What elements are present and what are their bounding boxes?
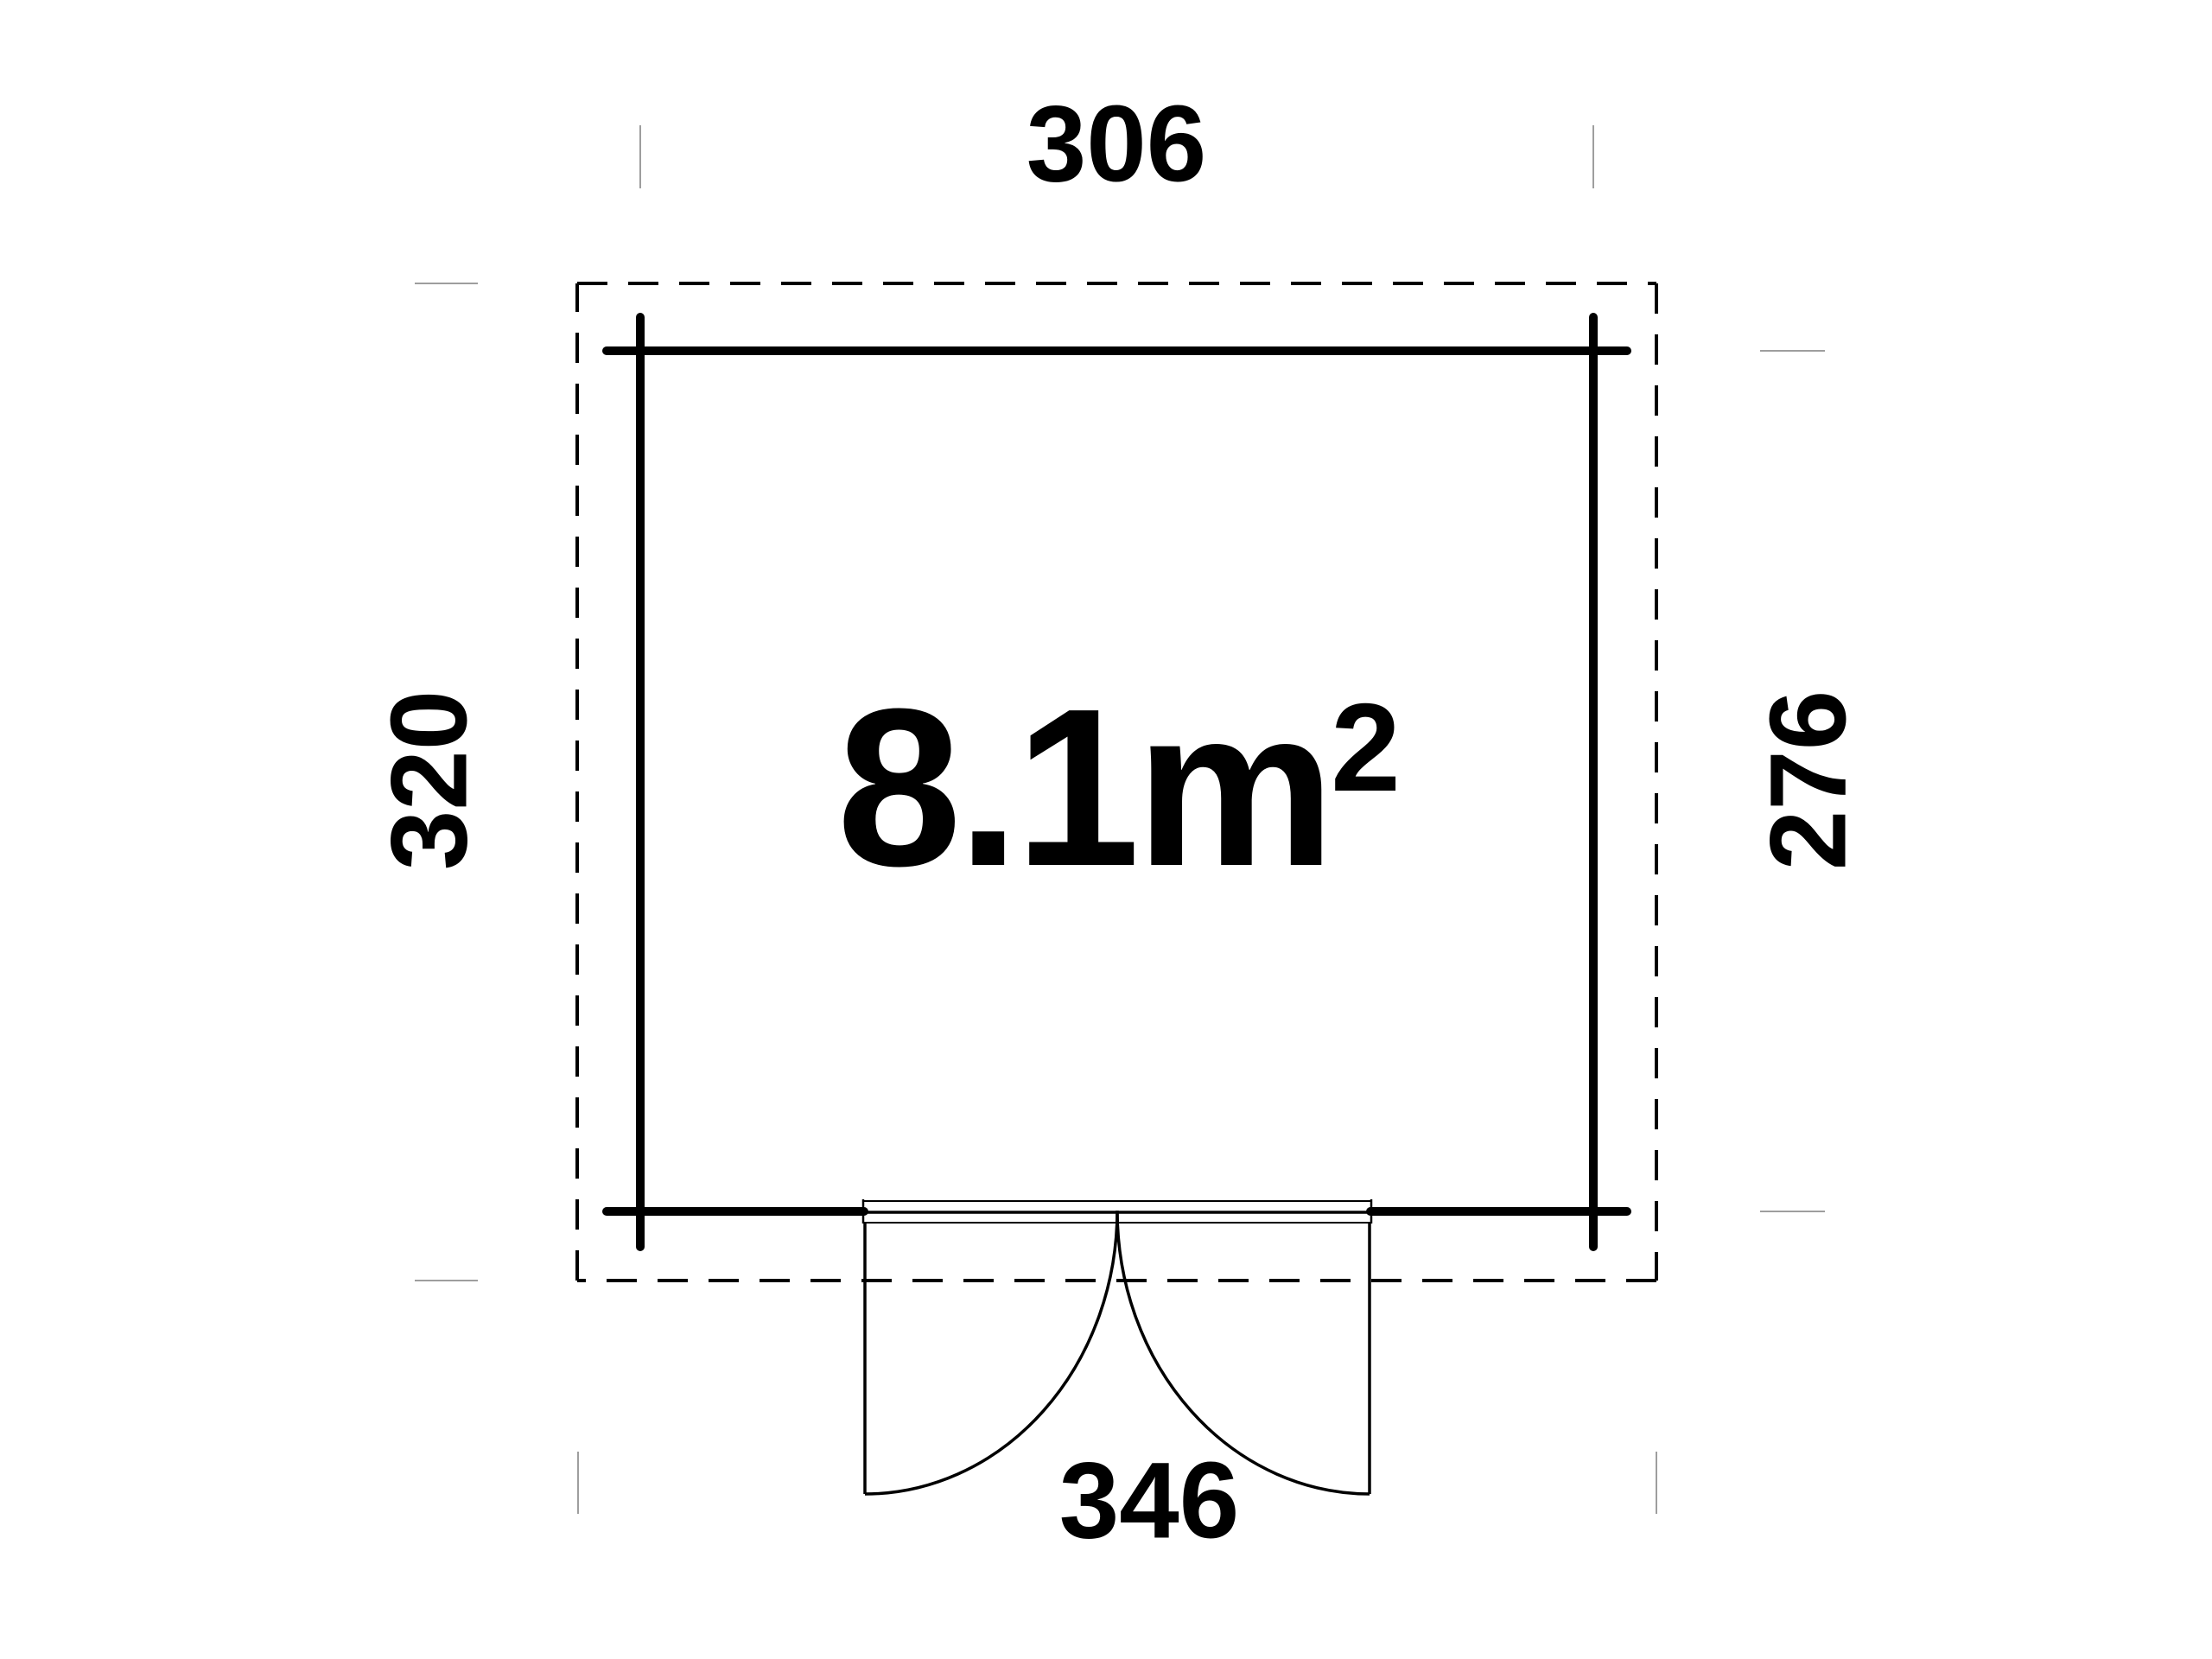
area-exponent: 2 xyxy=(1331,677,1395,817)
area-value: 8.1 xyxy=(836,663,1135,913)
dimension-label-bottom: 346 xyxy=(1059,1447,1240,1555)
dimension-label-right: 276 xyxy=(1755,690,1863,871)
floor-plan: 306 320 276 346 8.1m2 xyxy=(0,0,2212,1659)
area-label: 8.1m2 xyxy=(836,676,1395,900)
dimension-label-left: 320 xyxy=(376,690,484,871)
dimension-label-top: 306 xyxy=(1027,91,1207,199)
area-unit: m xyxy=(1135,663,1331,913)
